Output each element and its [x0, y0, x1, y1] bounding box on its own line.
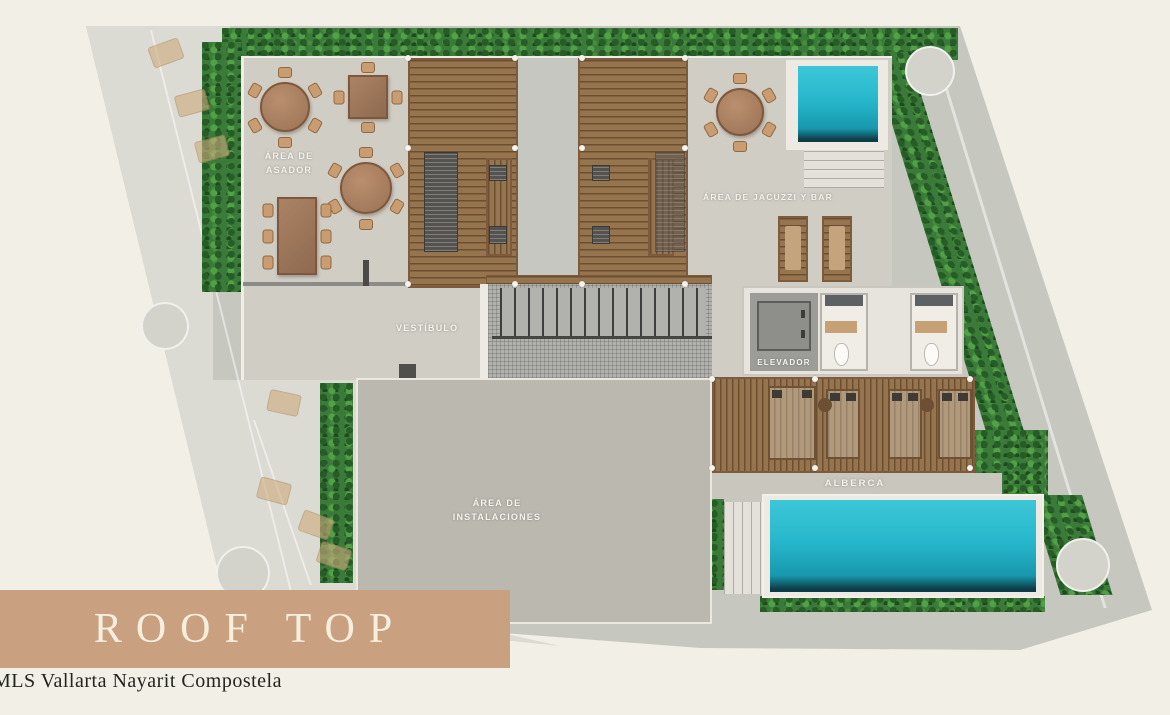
chair [246, 81, 263, 99]
pillow [942, 393, 952, 401]
pergola-post [709, 376, 715, 382]
chair [359, 219, 373, 230]
pillow [802, 390, 812, 398]
pergola-post [512, 55, 518, 61]
round-planter [905, 46, 955, 96]
side-table [920, 398, 934, 412]
rooftop-banner-title: ROOF TOP [94, 605, 406, 653]
chair [702, 87, 719, 105]
pergola-post [967, 376, 973, 382]
round-planter [141, 302, 189, 350]
pergola-post [682, 55, 688, 61]
pergola-post [579, 55, 585, 61]
round-table [716, 88, 764, 136]
lounge-chair [174, 88, 211, 118]
round-table [340, 162, 392, 214]
lounge-chair [266, 389, 302, 417]
pillow [772, 390, 782, 398]
chair [359, 147, 373, 158]
chair [334, 91, 345, 105]
chair [761, 87, 778, 105]
chair [761, 121, 778, 139]
lounge-chair [256, 476, 293, 506]
chair [263, 230, 274, 244]
lounge-chair [297, 509, 335, 541]
chair [389, 198, 406, 216]
chair [278, 67, 292, 78]
chair [361, 62, 375, 73]
pergola-post [512, 145, 518, 151]
chair [321, 204, 332, 218]
round-table [260, 82, 310, 132]
chair [733, 141, 747, 152]
chair [246, 116, 263, 134]
round-planter [1056, 538, 1110, 592]
pillow [958, 393, 968, 401]
pergola-post [579, 281, 585, 287]
chair [327, 162, 344, 180]
pillow [830, 393, 840, 401]
chair [263, 256, 274, 270]
chair [307, 116, 324, 134]
pillow [892, 393, 902, 401]
lounge-chair [194, 134, 231, 164]
chair [733, 73, 747, 84]
pergola-post [709, 465, 715, 471]
pergola-post [682, 281, 688, 287]
chair [263, 204, 274, 218]
pillow [908, 393, 918, 401]
chair [278, 137, 292, 148]
pillow [846, 393, 856, 401]
pergola-post [405, 55, 411, 61]
chair [307, 81, 324, 99]
lounge-chair [315, 541, 352, 572]
lounger-pad [829, 226, 845, 270]
sun-lounger [822, 216, 852, 282]
chair [392, 91, 403, 105]
pergola-post [405, 145, 411, 151]
rooftop-floorplan: ELEVADOR ÁREA DE ASADOR ÁREA DE JACUZZI … [0, 0, 1170, 715]
chair [361, 122, 375, 133]
rooftop-banner: ROOF TOP [0, 590, 510, 668]
lounger-pad [785, 226, 801, 270]
sun-lounger [778, 216, 808, 282]
chair [389, 162, 406, 180]
pergola-post [512, 281, 518, 287]
pergola-post [967, 465, 973, 471]
lounge-chair [147, 37, 185, 69]
pergola-post [405, 281, 411, 287]
chair [321, 256, 332, 270]
long-table [277, 197, 317, 275]
side-table [818, 398, 832, 412]
pergola-post [682, 145, 688, 151]
pergola-post [812, 376, 818, 382]
mls-watermark: MLS Vallarta Nayarit Compostela [0, 670, 282, 693]
chair [702, 121, 719, 139]
chair [321, 230, 332, 244]
pergola-post [579, 145, 585, 151]
pergola-post [812, 465, 818, 471]
square-table [348, 75, 388, 119]
